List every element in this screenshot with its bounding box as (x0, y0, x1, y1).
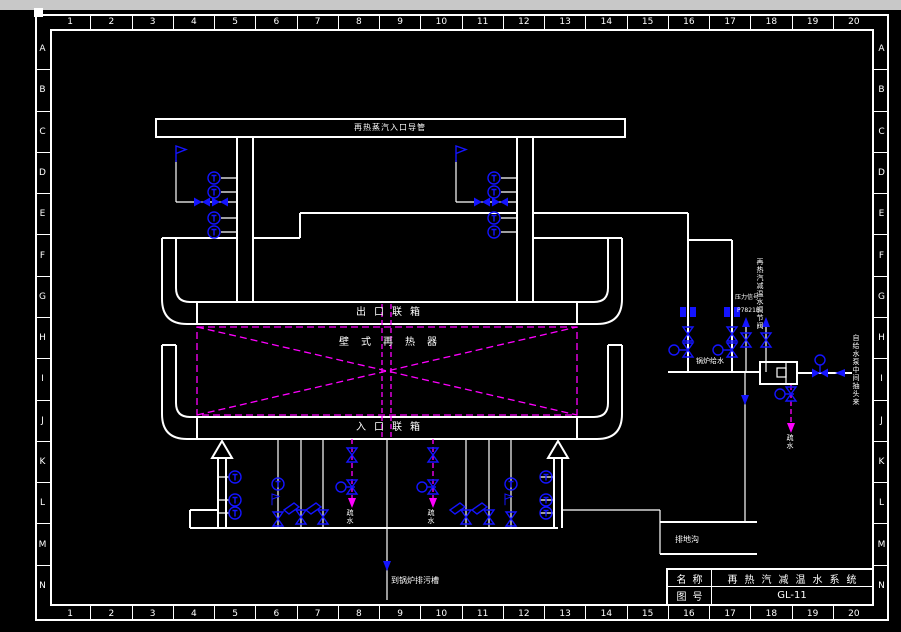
flow-arrow-icon (429, 498, 437, 508)
title-no-value: GL-11 (712, 587, 872, 604)
wall-reheater-label: 壁式再热器 (339, 338, 449, 348)
actuator-icons (336, 345, 825, 492)
outlet-header-label: 出口联箱 (356, 308, 428, 318)
title-name-value: 再热汽减温水系统 (712, 570, 872, 587)
top-pipe-label: 再热蒸汽入口导管 (354, 124, 426, 132)
flow-arrow-icon (348, 498, 356, 508)
drain-label-2: 疏水 (427, 509, 434, 531)
drain-ditch-label: 排地沟 (675, 536, 699, 544)
flow-arrow-icons (383, 317, 845, 571)
cad-canvas: 1234567891011121314151617181920 12345678… (0, 0, 901, 632)
drain-label-right: 疏水 (786, 434, 793, 456)
boiler-feedwater-label: 锅炉给水 (696, 358, 724, 365)
inlet-header-label: 入口联箱 (356, 423, 428, 433)
flow-arrow-icon (787, 423, 795, 433)
piping-diagram (0, 0, 901, 632)
spray-drain-lines (348, 385, 795, 508)
title-no-label: 图号 (668, 587, 712, 604)
title-name-label: 名称 (668, 570, 712, 587)
from-feed-pump-label: 自给水泵中间抽头来 (852, 334, 859, 404)
main-pipes (156, 119, 852, 600)
drain-label-1: 疏水 (346, 509, 353, 531)
spray-water-line-label: 再热汽减温水调节阀 (756, 258, 763, 336)
title-block: 名称 再热汽减温水系统 图号 GL-11 (666, 568, 874, 606)
to-blowdown-label: 到锅炉排污槽 (391, 577, 439, 585)
